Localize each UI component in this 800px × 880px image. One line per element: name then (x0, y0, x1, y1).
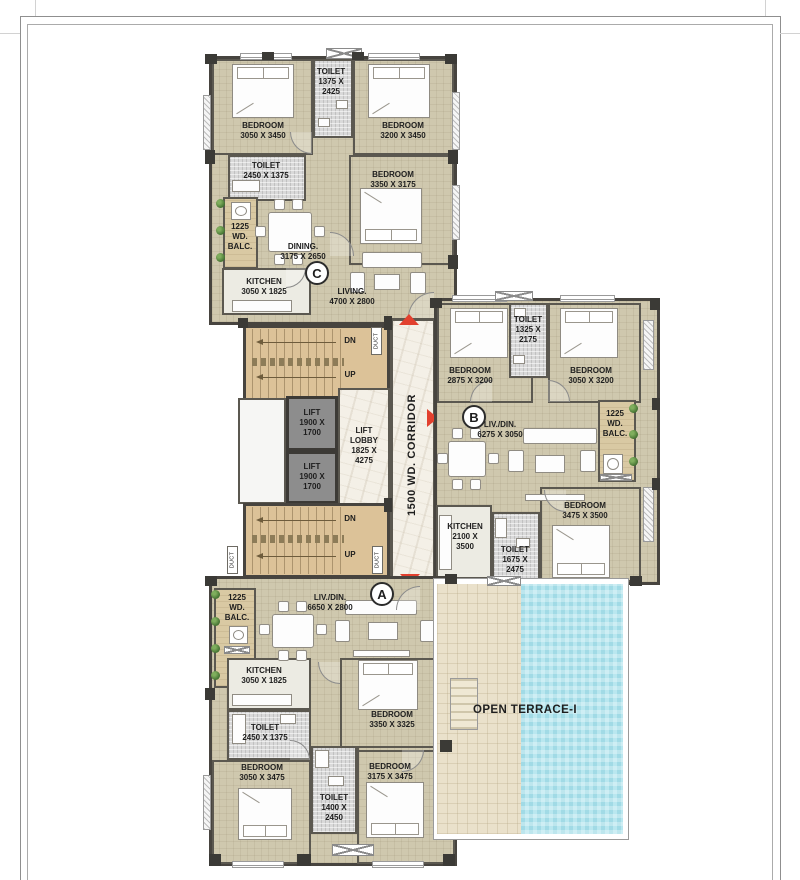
plant-icon (216, 199, 225, 208)
bed (238, 788, 292, 840)
room-label: TOILET 1400 X 2450 (320, 793, 348, 823)
window (560, 295, 615, 302)
bed (450, 308, 508, 358)
window (232, 861, 284, 868)
window-hatch (203, 775, 211, 830)
plant-icon (216, 253, 225, 262)
frame-top-inner (27, 24, 772, 25)
plant-icon (629, 430, 638, 439)
wall-pier (205, 688, 215, 700)
dining-table (448, 441, 486, 477)
room-label: BEDROOM 3175 X 3475 (367, 762, 412, 782)
washing-machine-icon (231, 202, 251, 220)
window (372, 861, 424, 868)
wall-pier (652, 478, 660, 490)
terrace-label: OPEN TERRACE-I (473, 703, 577, 717)
stair-arrow (262, 377, 336, 378)
wall-pier (448, 255, 458, 269)
room-label: BEDROOM 3050 X 3200 (568, 366, 613, 386)
room-label: KITCHEN 2100 X 3500 (447, 522, 483, 552)
stair-label-up: UP (344, 370, 355, 380)
room-label: BEDROOM 2875 X 3200 (447, 366, 492, 386)
chair (470, 479, 481, 490)
wall-pier (445, 54, 457, 64)
wall-pier (630, 576, 642, 586)
chair (488, 453, 499, 464)
wall-pier (445, 574, 457, 584)
wall-pier (205, 150, 215, 164)
tv-unit (353, 650, 410, 657)
balcony-x (600, 474, 632, 481)
room-label: LIVING. 4700 X 2800 (329, 287, 374, 307)
armchair (410, 272, 426, 294)
floor-plan-page: BEDROOM 3050 X 3450 TOILET 1375 X 2425 B… (0, 0, 800, 880)
room-label: TOILET 1325 X 2175 (514, 315, 542, 345)
washing-machine-icon (603, 454, 623, 474)
room-label: BEDROOM 3475 X 3500 (562, 501, 607, 521)
wall-pier (650, 298, 660, 310)
kitchen-counter (232, 694, 292, 706)
chair (296, 601, 307, 612)
room-label: 1225 WD. BALC. (228, 222, 252, 252)
room-label: LIV./DIN. 6650 X 2800 (307, 593, 352, 613)
stair-landing (252, 535, 344, 543)
stair-arrow (262, 556, 336, 557)
plant-icon (629, 404, 638, 413)
lift-machine-room (238, 398, 286, 504)
armchair (335, 620, 350, 642)
toilet-shower (495, 518, 507, 538)
window-hatch (643, 320, 654, 370)
kitchen-counter (232, 300, 292, 312)
chair (452, 428, 463, 439)
wall-pier (443, 854, 455, 866)
chair (437, 453, 448, 464)
frame-right-inner (772, 24, 773, 880)
unit-b-marker: B (462, 405, 486, 429)
coffee-table (535, 455, 565, 473)
room-label: BEDROOM 3350 X 3175 (370, 170, 415, 190)
chair (259, 624, 270, 635)
lift-lobby-label: LIFT LOBBY 1825 X 4275 (350, 426, 378, 466)
stair-arrow (262, 342, 336, 343)
wall-pier (652, 398, 660, 410)
crop-mark (765, 0, 766, 16)
room-label: 1225 WD. BALC. (603, 409, 627, 439)
wall-pier (352, 52, 364, 60)
chair (278, 601, 289, 612)
stair-label-up: UP (344, 550, 355, 560)
frame-left-inner (27, 24, 28, 880)
window-hatch (452, 92, 460, 150)
room-label: DINING. 3175 X 2650 (280, 242, 325, 262)
unit-a-marker: A (370, 582, 394, 606)
wall-pier (209, 854, 221, 866)
wall-pier (384, 498, 392, 512)
stair-label-dn: DN (344, 336, 356, 346)
toilet-wc (328, 776, 344, 786)
balcony-x (224, 646, 250, 654)
room-label: KITCHEN 3050 X 1825 (241, 666, 286, 686)
window (368, 53, 420, 60)
bed (560, 308, 618, 358)
chair (292, 199, 303, 210)
room-label: TOILET 2450 X 1375 (242, 723, 287, 743)
toilet-wc (513, 355, 525, 364)
bed (552, 525, 610, 578)
bed (366, 782, 424, 838)
sofa (362, 252, 422, 268)
washing-machine-icon (229, 626, 248, 644)
wall-pier (205, 54, 217, 64)
chair (278, 650, 289, 661)
room-label: BEDROOM 3350 X 3325 (369, 710, 414, 730)
room-label: TOILET 1375 X 2425 (317, 67, 345, 97)
window-x (332, 844, 374, 856)
frame-left-outer (20, 16, 21, 880)
room-label: BEDROOM 3200 X 3450 (380, 121, 425, 141)
wall-pier (384, 316, 392, 330)
chair (255, 226, 266, 237)
stair-landing (252, 358, 344, 366)
window-hatch (203, 95, 211, 150)
coffee-table (368, 622, 398, 640)
lift-label: LIFT 1900 X 1700 (299, 462, 324, 492)
wall-pier (205, 576, 217, 586)
crop-mark (0, 33, 20, 34)
duct-label: DUCT (374, 333, 381, 349)
plant-icon (211, 617, 220, 626)
corridor-label: 1500 WD. CORRIDOR (406, 394, 420, 516)
wall-pier (297, 854, 311, 866)
bed (358, 660, 418, 710)
lift-label: LIFT 1900 X 1700 (299, 408, 324, 438)
dining-table (272, 614, 314, 648)
crop-mark (35, 0, 36, 16)
toilet-tub (232, 180, 260, 192)
chair (314, 226, 325, 237)
stair-label-dn: DN (344, 514, 356, 524)
toilet-wc (336, 100, 348, 109)
room-label: BEDROOM 3050 X 3475 (239, 763, 284, 783)
crop-mark (780, 33, 800, 34)
sofa (523, 428, 597, 444)
chair (452, 479, 463, 490)
window-x (487, 576, 521, 586)
armchair (580, 450, 596, 472)
unit-c-marker: C (305, 261, 329, 285)
chair (316, 624, 327, 635)
bed (368, 64, 430, 118)
window-hatch (452, 185, 460, 240)
duct-label: DUCT (375, 552, 382, 568)
wall-pier (238, 318, 248, 328)
plant-icon (211, 644, 220, 653)
window-hatch (643, 487, 654, 542)
toilet-sink (318, 118, 330, 127)
plant-icon (211, 590, 220, 599)
coffee-table (374, 274, 400, 290)
room-label: BEDROOM 3050 X 3450 (240, 121, 285, 141)
plant-icon (216, 226, 225, 235)
armchair (508, 450, 524, 472)
toilet-shower (315, 750, 329, 768)
wall-pier (440, 740, 452, 752)
room-label: TOILET 2450 X 1375 (243, 161, 288, 181)
wall-pier (262, 52, 274, 60)
room-label: KITCHEN 3050 X 1825 (241, 277, 286, 297)
bed (360, 188, 422, 244)
chair (274, 199, 285, 210)
duct-label: DUCT (230, 552, 237, 568)
frame-right-outer (780, 16, 781, 880)
room-label: 1225 WD. BALC. (225, 593, 249, 623)
wall-pier (448, 150, 458, 164)
frame-top-outer (20, 16, 780, 17)
window-x (495, 291, 533, 301)
plant-icon (629, 457, 638, 466)
plant-icon (211, 671, 220, 680)
entry-arrow-unit-c (399, 314, 419, 325)
stair-arrow (262, 520, 336, 521)
bed (232, 64, 294, 118)
room-label: TOILET 1675 X 2475 (501, 545, 529, 575)
wall-pier (430, 298, 442, 308)
chair (296, 650, 307, 661)
